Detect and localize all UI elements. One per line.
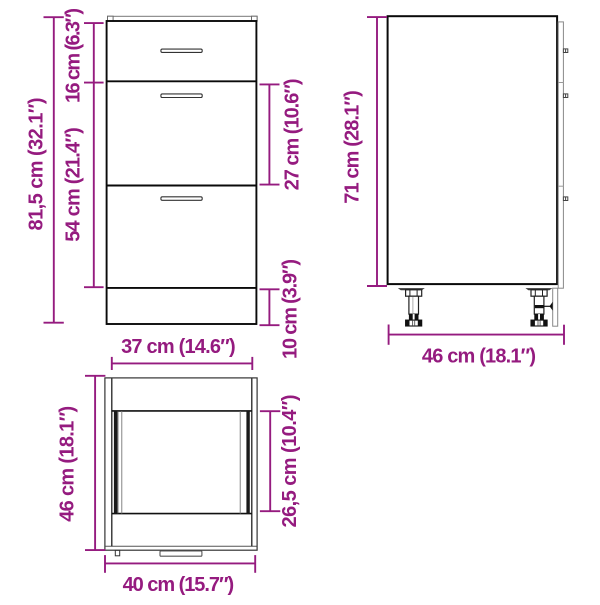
- svg-text:46 cm (18.1″): 46 cm (18.1″): [422, 346, 536, 368]
- svg-text:46 cm (18.1″): 46 cm (18.1″): [57, 406, 79, 522]
- svg-text:26,5 cm (10.4″): 26,5 cm (10.4″): [279, 395, 301, 528]
- svg-text:71 cm (28.1″): 71 cm (28.1″): [341, 90, 363, 204]
- svg-text:81,5 cm (32.1″): 81,5 cm (32.1″): [26, 98, 48, 231]
- svg-text:10 cm (3.9″): 10 cm (3.9″): [279, 259, 301, 359]
- svg-text:16 cm (6.3″): 16 cm (6.3″): [62, 8, 84, 103]
- svg-text:40 cm (15.7″): 40 cm (15.7″): [123, 574, 235, 596]
- svg-text:37 cm (14.6″): 37 cm (14.6″): [121, 336, 236, 358]
- svg-text:54 cm (21.4″): 54 cm (21.4″): [62, 127, 84, 242]
- svg-text:27 cm (10.6″): 27 cm (10.6″): [281, 78, 303, 190]
